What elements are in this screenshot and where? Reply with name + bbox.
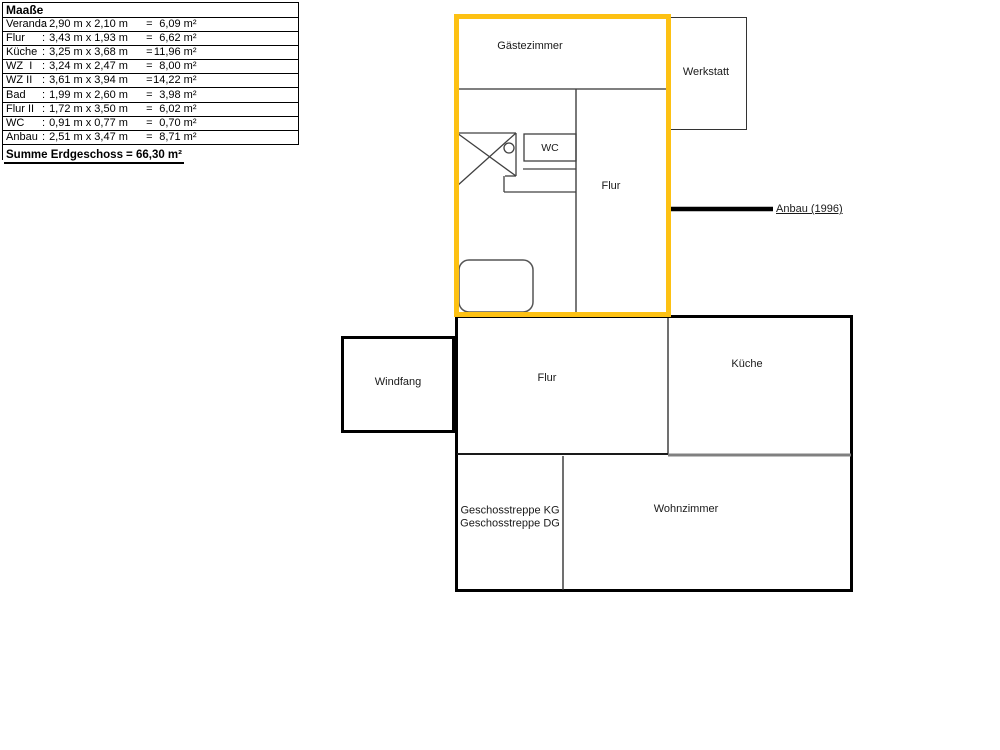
measurements-title: Maaße <box>3 3 298 18</box>
total-value: = 66,30 m² <box>126 149 182 161</box>
label-wohnzimmer: Wohnzimmer <box>654 503 719 515</box>
total-label: Summe Erdgeschoss <box>6 149 123 161</box>
table-row: Bad: 1,99 m x 2,60 m= 3,98 m² <box>3 88 298 102</box>
label-flur-lower: Flur <box>538 372 557 384</box>
room-area: 3,98 m² <box>153 89 197 102</box>
room-area: 6,62 m² <box>153 32 197 45</box>
table-row: Anbau: 2,51 m x 3,47 m= 8,71 m² <box>3 131 298 144</box>
room-dimensions: 2,51 m x 3,47 m <box>49 131 146 144</box>
room-name: Bad <box>6 89 42 102</box>
room-area: 11,96 m² <box>153 46 197 59</box>
room-area: 14,22 m² <box>153 74 197 87</box>
room-dimensions: 1,72 m x 3,50 m <box>49 103 146 116</box>
label-geschosstreppe: Geschosstreppe KG Geschosstreppe DG <box>460 505 560 530</box>
room-dimensions: 2,90 m x 2,10 m <box>49 18 146 31</box>
room-name: Flur <box>6 32 42 45</box>
room-area: 8,00 m² <box>153 60 197 73</box>
label-geschosstreppe-kg: Geschosstreppe KG <box>460 505 560 518</box>
room-name: Veranda <box>6 18 42 31</box>
table-row: Küche: 3,25 m x 3,68 m= 11,96 m² <box>3 46 298 60</box>
label-windfang: Windfang <box>375 376 421 388</box>
label-gaestezimmer: Gästezimmer <box>497 40 562 52</box>
room-name: WZ II <box>6 74 42 87</box>
room-area: 8,71 m² <box>153 131 197 144</box>
table-row: WC: 0,91 m x 0,77 m= 0,70 m² <box>3 117 298 131</box>
table-row: WZ II: 3,61 m x 3,94 m= 14,22 m² <box>3 74 298 88</box>
room-dimensions: 3,61 m x 3,94 m <box>49 74 146 87</box>
label-anbau-annotation: Anbau (1996) <box>776 203 843 215</box>
room-name: WZ I <box>6 60 42 73</box>
room-area: 6,02 m² <box>153 103 197 116</box>
room-dimensions: 3,24 m x 2,47 m <box>49 60 146 73</box>
floorplan-page: { "measurements": { "title": "Maaße", "c… <box>0 0 1000 750</box>
table-row: WZ I: 3,24 m x 2,47 m= 8,00 m² <box>3 60 298 74</box>
room-dimensions: 1,99 m x 2,60 m <box>49 89 146 102</box>
room-area: 6,09 m² <box>153 18 197 31</box>
room-dimensions: 0,91 m x 0,77 m <box>49 117 146 130</box>
lower-building-outline <box>455 315 853 592</box>
room-name: Küche <box>6 46 42 59</box>
room-dimensions: 3,43 m x 1,93 m <box>49 32 146 45</box>
label-flur-upper: Flur <box>602 180 621 192</box>
room-dimensions: 3,25 m x 3,68 m <box>49 46 146 59</box>
room-name: Flur II <box>6 103 42 116</box>
table-row: Flur: 3,43 m x 1,93 m= 6,62 m² <box>3 32 298 46</box>
total-row: Summe Erdgeschoss = 66,30 m² <box>2 145 299 160</box>
room-area: 0,70 m² <box>153 117 197 130</box>
table-row: Flur II: 1,72 m x 3,50 m= 6,02 m² <box>3 103 298 117</box>
label-wc: WC <box>541 142 559 154</box>
room-name: Anbau <box>6 131 42 144</box>
label-kueche: Küche <box>731 358 762 370</box>
label-geschosstreppe-dg: Geschosstreppe DG <box>460 517 560 530</box>
measurements-table: Maaße Veranda: 2,90 m x 2,10 m= 6,09 m² … <box>2 2 299 145</box>
highlight-rectangle <box>454 14 671 317</box>
label-werkstatt: Werkstatt <box>683 66 729 78</box>
room-name: WC <box>6 117 42 130</box>
table-row: Veranda: 2,90 m x 2,10 m= 6,09 m² <box>3 18 298 32</box>
